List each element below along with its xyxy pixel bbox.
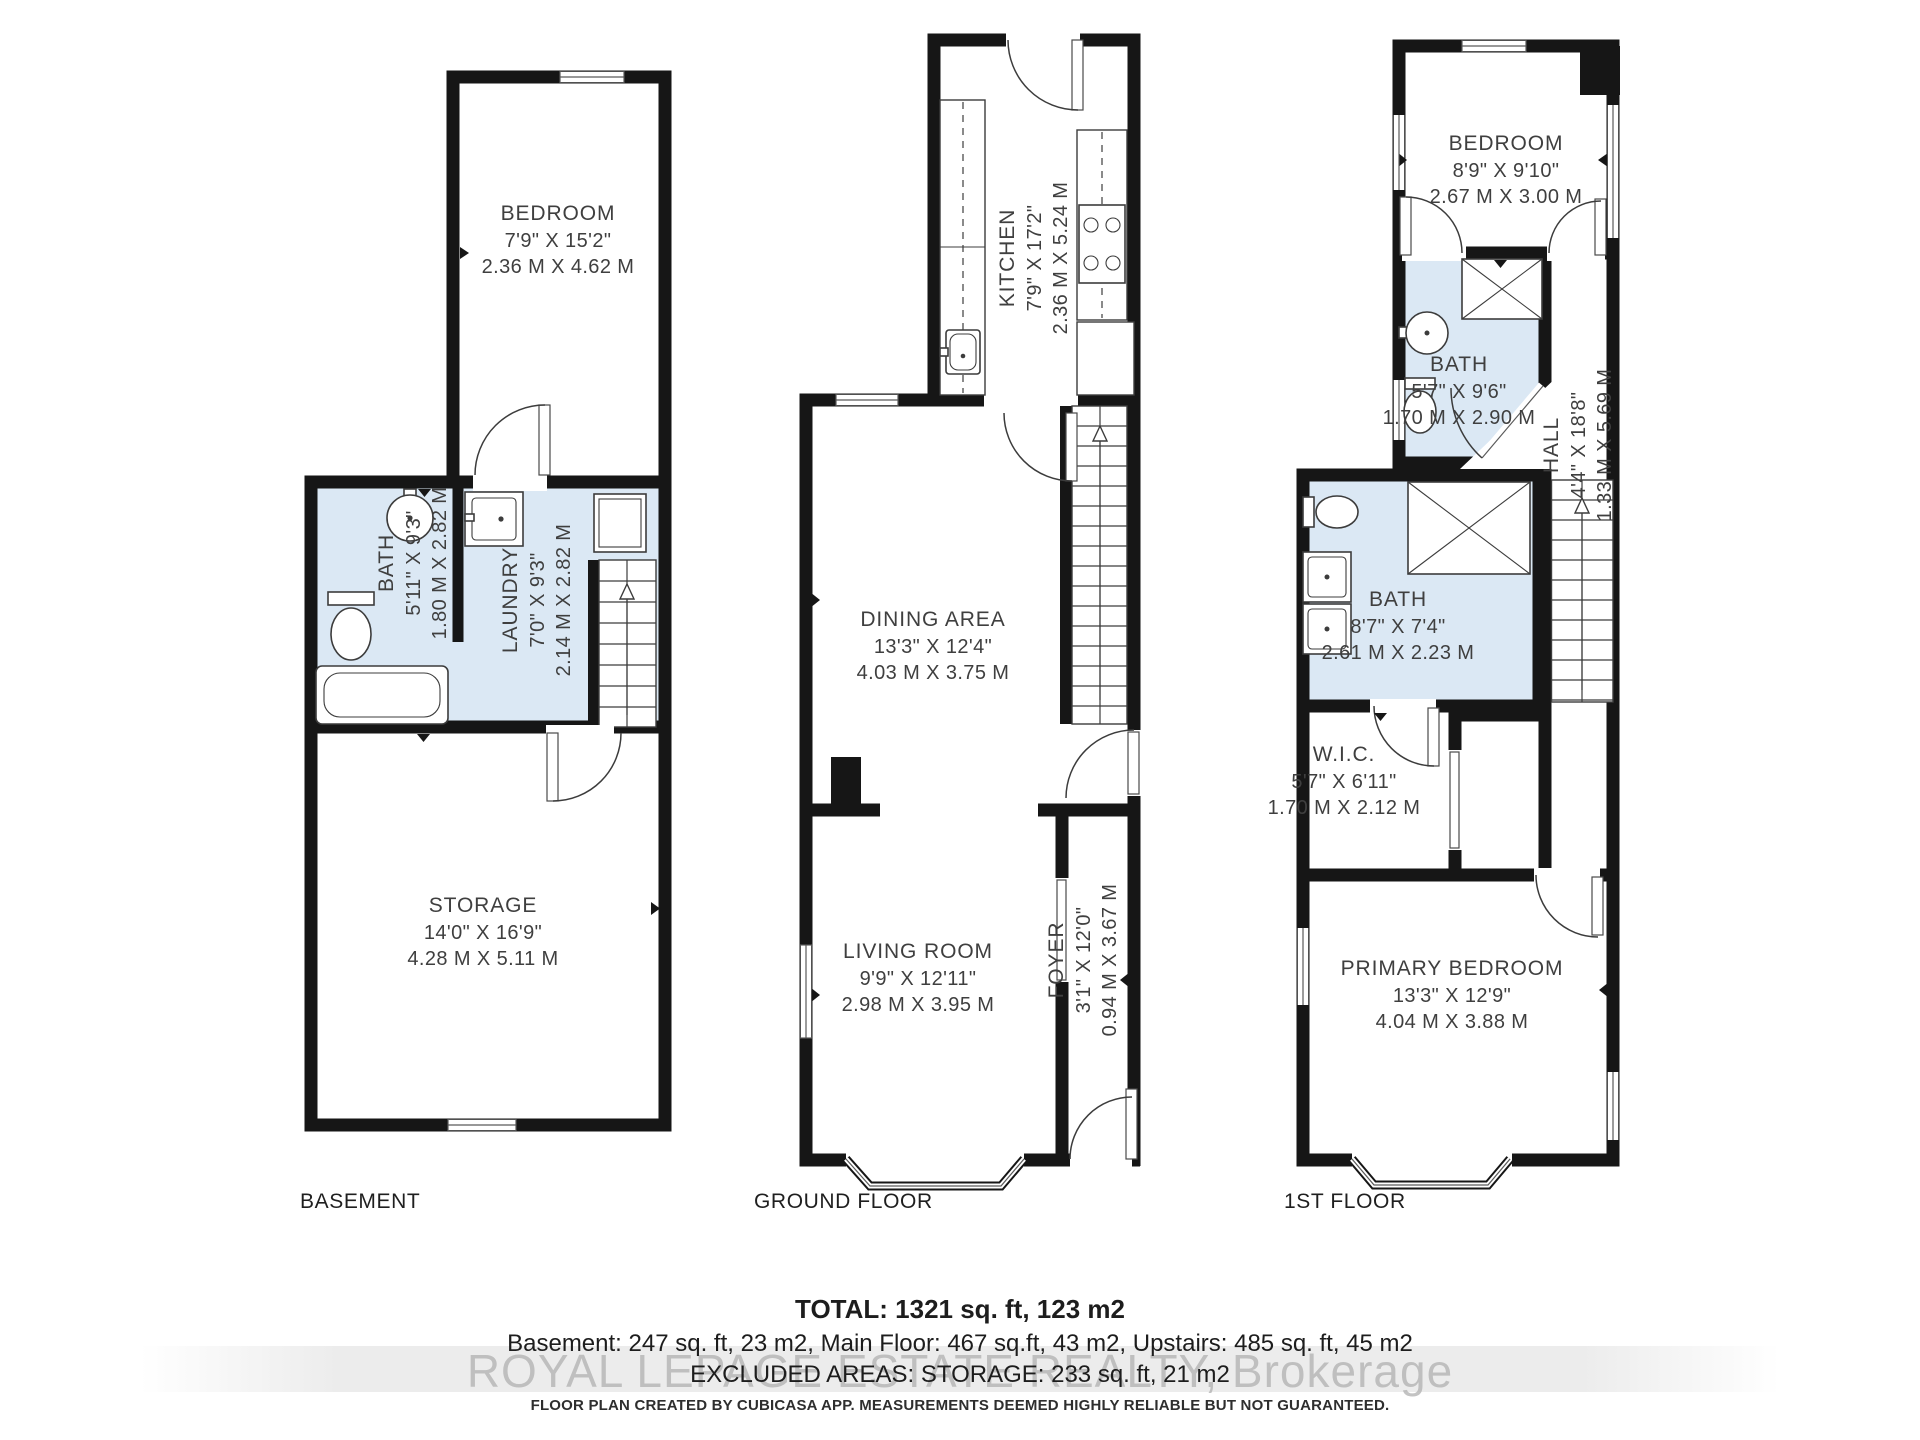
toilet-tank	[328, 592, 374, 605]
room-dim-m: 2.67 M X 3.00 M	[1430, 184, 1583, 210]
door-leaf	[1066, 413, 1077, 481]
door-leaf	[1072, 40, 1083, 110]
room-dim-ft: 5'7" X 9'6"	[1383, 378, 1536, 404]
front-door-arc	[1070, 1097, 1132, 1159]
room-name: DINING AREA	[857, 606, 1010, 634]
door-leaf	[539, 405, 550, 475]
room-label-hall: HALL 4'4" X 18'8" 1.33 M X 5.69 M	[1538, 369, 1619, 522]
chimney	[831, 757, 861, 805]
bathtub	[316, 666, 448, 724]
room-dim-m: 2.14 M X 2.82 M	[551, 524, 577, 677]
room-name: BEDROOM	[1430, 130, 1583, 158]
room-dim-ft: 9'9" X 12'11"	[842, 965, 995, 991]
room-dim-ft: 7'9" X 17'2"	[1021, 182, 1047, 335]
room-dim-m: 1.80 M X 2.82 M	[427, 487, 453, 640]
room-label-foyer: FOYER 3'1" X 12'0" 0.94 M X 3.67 M	[1043, 884, 1124, 1037]
room-name: HALL	[1538, 369, 1566, 522]
door-leaf	[1128, 732, 1139, 794]
door-leaf	[1400, 197, 1411, 255]
room-label-basement-bath: BATH 5'11" X 9'3" 1.80 M X 2.82 M	[373, 487, 454, 640]
toilet-tank	[1303, 497, 1314, 527]
door-leaf	[1595, 199, 1606, 255]
room-dim-ft: 5'11" X 9'3"	[400, 487, 426, 640]
wall-jog	[1580, 46, 1620, 95]
room-dim-ft: 5'7" X 6'11"	[1268, 768, 1421, 794]
floor-plan-page: BEDROOM 7'9" X 15'2" 2.36 M X 4.62 M BAT…	[0, 0, 1920, 1440]
basement-staircase	[588, 560, 656, 727]
room-name: STORAGE	[407, 892, 558, 920]
room-dim-ft: 7'9" X 15'2"	[482, 227, 635, 253]
stove	[1079, 205, 1125, 283]
room-name: FOYER	[1043, 884, 1071, 1037]
room-dim-m: 4.28 M X 5.11 M	[407, 946, 558, 972]
room-name: BATH	[1383, 351, 1536, 379]
room-name: BEDROOM	[482, 200, 635, 228]
excluded-areas-text: EXCLUDED AREAS: STORAGE: 233 sq. ft, 21 …	[0, 1361, 1920, 1389]
room-label-kitchen: KITCHEN 7'9" X 17'2" 2.36 M X 5.24 M	[994, 182, 1075, 335]
washer	[594, 494, 646, 552]
door-leaf	[547, 733, 558, 801]
room-dim-m: 1.70 M X 2.12 M	[1268, 795, 1421, 821]
total-area-text: TOTAL: 1321 sq. ft, 123 m2	[0, 1294, 1920, 1325]
room-label-living: LIVING ROOM 9'9" X 12'11" 2.98 M X 3.95 …	[842, 938, 995, 1019]
room-dim-ft: 13'3" X 12'9"	[1341, 982, 1564, 1008]
room-name: W.I.C.	[1268, 741, 1421, 769]
room-dim-m: 2.36 M X 4.62 M	[482, 254, 635, 280]
room-dim-ft: 8'7" X 7'4"	[1322, 613, 1475, 639]
floor-label-first: 1ST FLOOR	[1284, 1190, 1406, 1214]
area-breakdown-text: Basement: 247 sq. ft, 23 m2, Main Floor:…	[0, 1330, 1920, 1358]
room-name: LIVING ROOM	[842, 938, 995, 966]
floor-plan-graphics	[0, 0, 1920, 1440]
kitchen-cabinet	[1077, 322, 1134, 395]
room-dim-m: 1.70 M X 2.90 M	[1383, 405, 1536, 431]
room-label-first-bedroom: BEDROOM 8'9" X 9'10" 2.67 M X 3.00 M	[1430, 130, 1583, 211]
room-dim-m: 2.61 M X 2.23 M	[1322, 640, 1475, 666]
room-dim-m: 2.98 M X 3.95 M	[842, 992, 995, 1018]
room-name: BATH	[1322, 586, 1475, 614]
room-dim-m: 4.03 M X 3.75 M	[857, 660, 1010, 686]
toilet-bowl	[1316, 496, 1358, 528]
door-leaf	[1592, 877, 1603, 935]
room-label-upper-bath: BATH 5'7" X 9'6" 1.70 M X 2.90 M	[1383, 351, 1536, 432]
room-label-primary-bedroom: PRIMARY BEDROOM 13'3" X 12'9" 4.04 M X 3…	[1341, 955, 1564, 1036]
kitchen-sink	[946, 330, 980, 374]
room-label-basement-storage: STORAGE 14'0" X 16'9" 4.28 M X 5.11 M	[407, 892, 558, 973]
room-dim-ft: 8'9" X 9'10"	[1430, 157, 1583, 183]
faucet	[940, 348, 948, 356]
room-dim-ft: 7'0" X 9'3"	[524, 524, 550, 677]
room-name: KITCHEN	[994, 182, 1022, 335]
front-door-leaf	[1126, 1089, 1137, 1159]
room-dim-ft: 4'4" X 18'8"	[1565, 369, 1591, 522]
toilet-bowl	[331, 608, 371, 660]
door-leaf	[1450, 752, 1459, 848]
room-name: BATH	[373, 487, 401, 640]
room-name: LAUNDRY	[497, 524, 525, 677]
door-leaf	[1428, 708, 1439, 766]
room-name: PRIMARY BEDROOM	[1341, 955, 1564, 983]
primary-bay-window	[1352, 1152, 1512, 1185]
room-label-basement-bedroom: BEDROOM 7'9" X 15'2" 2.36 M X 4.62 M	[482, 200, 635, 281]
room-dim-m: 0.94 M X 3.67 M	[1097, 884, 1123, 1037]
faucet	[465, 514, 474, 521]
room-dim-m: 2.36 M X 5.24 M	[1048, 182, 1074, 335]
room-label-wic: W.I.C. 5'7" X 6'11" 1.70 M X 2.12 M	[1268, 741, 1421, 822]
room-label-main-bath: BATH 8'7" X 7'4" 2.61 M X 2.23 M	[1322, 586, 1475, 667]
room-label-dining: DINING AREA 13'3" X 12'4" 4.03 M X 3.75 …	[857, 606, 1010, 687]
room-label-basement-laundry: LAUNDRY 7'0" X 9'3" 2.14 M X 2.82 M	[497, 524, 578, 677]
disclaimer-text: FLOOR PLAN CREATED BY CUBICASA APP. MEAS…	[0, 1397, 1920, 1414]
room-dim-ft: 14'0" X 16'9"	[407, 919, 558, 945]
living-bay-window	[846, 1152, 1024, 1186]
room-dim-ft: 3'1" X 12'0"	[1070, 884, 1096, 1037]
floor-label-basement: BASEMENT	[300, 1190, 420, 1214]
room-dim-m: 4.04 M X 3.88 M	[1341, 1009, 1564, 1035]
room-dim-ft: 13'3" X 12'4"	[857, 633, 1010, 659]
floor-label-ground: GROUND FLOOR	[754, 1190, 933, 1214]
room-dim-m: 1.33 M X 5.69 M	[1592, 369, 1618, 522]
